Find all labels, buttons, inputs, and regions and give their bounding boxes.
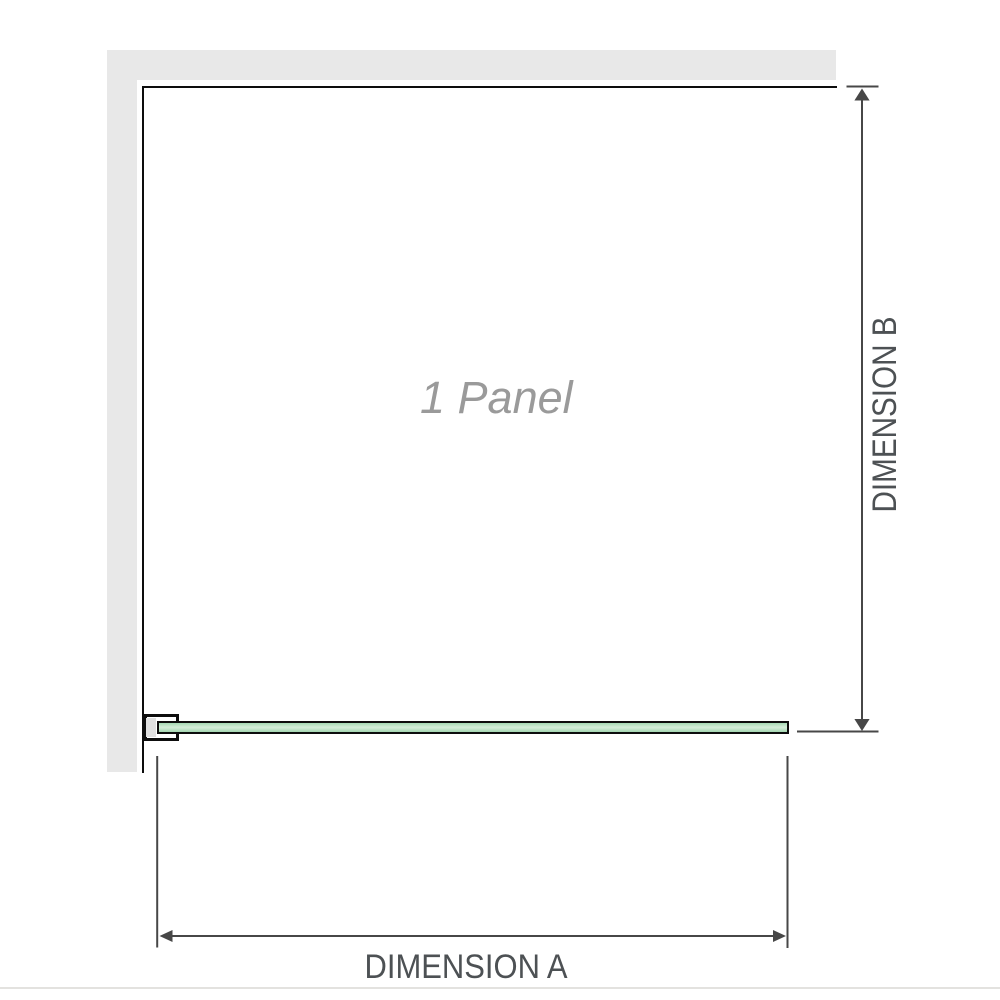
svg-text:DIMENSION A: DIMENSION A	[365, 948, 568, 986]
svg-text:DIMENSION B: DIMENSION B	[866, 317, 904, 513]
